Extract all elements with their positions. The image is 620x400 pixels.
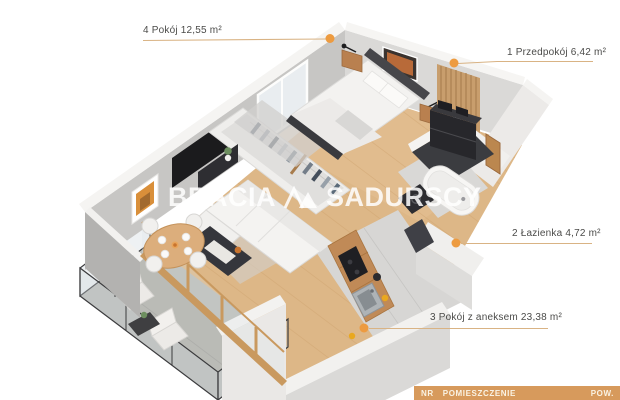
slat-accent-wall — [437, 64, 480, 136]
balcony-side-table — [128, 312, 160, 336]
living-rug — [190, 202, 296, 284]
room-number: 1 — [507, 47, 513, 58]
room-marker-dot — [450, 59, 459, 68]
bathroom-dark-wall — [412, 122, 494, 184]
room-number: 4 — [143, 25, 149, 36]
balcony-window — [258, 61, 307, 145]
wall-back-left — [79, 22, 345, 270]
bedroom — [234, 48, 440, 167]
room-name: Pokój — [152, 25, 178, 36]
nightstand — [342, 50, 362, 72]
balcony-railing — [80, 215, 288, 400]
room-label-2: 2 Łazienka 4,72 m² — [512, 228, 601, 239]
yellow-accent — [349, 333, 355, 339]
entrance-door — [486, 134, 500, 174]
wall-entrance-right — [449, 79, 553, 187]
brand-part2: SADURSCY — [326, 182, 482, 213]
cooktop — [338, 246, 368, 282]
balcony-chair — [114, 268, 154, 310]
brand-watermark: BRACIA SADURSCY — [168, 182, 482, 213]
room-marker-dot — [326, 34, 335, 43]
coffee-machine — [373, 273, 381, 281]
wood-floor — [148, 90, 620, 400]
room-name: Przedpokój — [516, 47, 568, 58]
bed — [286, 48, 430, 160]
balcony-chair — [148, 308, 188, 350]
legend-col-room: POMIESZCZENIE — [443, 389, 516, 398]
hallway-dresser — [430, 100, 482, 160]
yellow-accent — [382, 295, 388, 301]
room-label-1: 1 Przedpokój 6,42 m² — [507, 47, 606, 58]
room-area: 12,55 m² — [181, 25, 222, 36]
kitchen-tile-floor — [316, 210, 462, 344]
room-label-4: 4 Pokój 12,55 m² — [143, 25, 222, 36]
leader-line-room-1 — [458, 62, 593, 64]
brand-part1: BRACIA — [168, 182, 276, 213]
room-number: 2 — [512, 228, 518, 239]
wall-front-bottom — [216, 295, 450, 400]
dining-set — [138, 214, 210, 276]
brand-logo-icon — [283, 186, 319, 210]
floor-plan-page: BRACIA SADURSCY 4 Pokój 12,55 m² 1 Przed… — [0, 0, 620, 400]
room-marker-dot — [452, 239, 461, 248]
kitchen-annex — [328, 219, 434, 339]
balcony-doors — [140, 222, 287, 386]
legend-col-area: POW. — [591, 389, 614, 398]
bedroom-rug — [234, 100, 324, 167]
room-label-3: 3 Pokój z aneksem 23,38 m² — [430, 312, 562, 323]
wall-art-bedroom — [383, 47, 417, 81]
balcony-floor — [80, 243, 288, 400]
kitchen-sink — [352, 283, 384, 317]
room-name: Pokój z aneksem — [439, 312, 518, 323]
room-number: 3 — [430, 312, 436, 323]
nightstand — [420, 104, 440, 126]
legend-table-header: NR POMIESZCZENIE POW. — [414, 386, 620, 400]
room-area: 6,42 m² — [571, 47, 606, 58]
leader-line-room-4 — [143, 39, 326, 41]
living-tv — [172, 119, 228, 188]
legend-col-nr: NR — [421, 389, 434, 398]
wall-lamp — [342, 44, 356, 52]
room-name: Łazienka — [521, 228, 563, 239]
living-room — [138, 144, 332, 284]
wall-art-living — [132, 174, 158, 224]
wall-front-left — [85, 207, 145, 318]
room-area: 23,38 m² — [521, 312, 562, 323]
wall-back-right — [342, 22, 525, 143]
room-marker-dot — [360, 324, 369, 333]
coffee-table — [186, 226, 252, 276]
wall-lamp — [428, 99, 442, 107]
room-area: 4,72 m² — [565, 228, 600, 239]
kitchen-appliance — [404, 219, 434, 253]
balcony — [80, 215, 288, 400]
kitchen-cabinets — [328, 230, 394, 322]
